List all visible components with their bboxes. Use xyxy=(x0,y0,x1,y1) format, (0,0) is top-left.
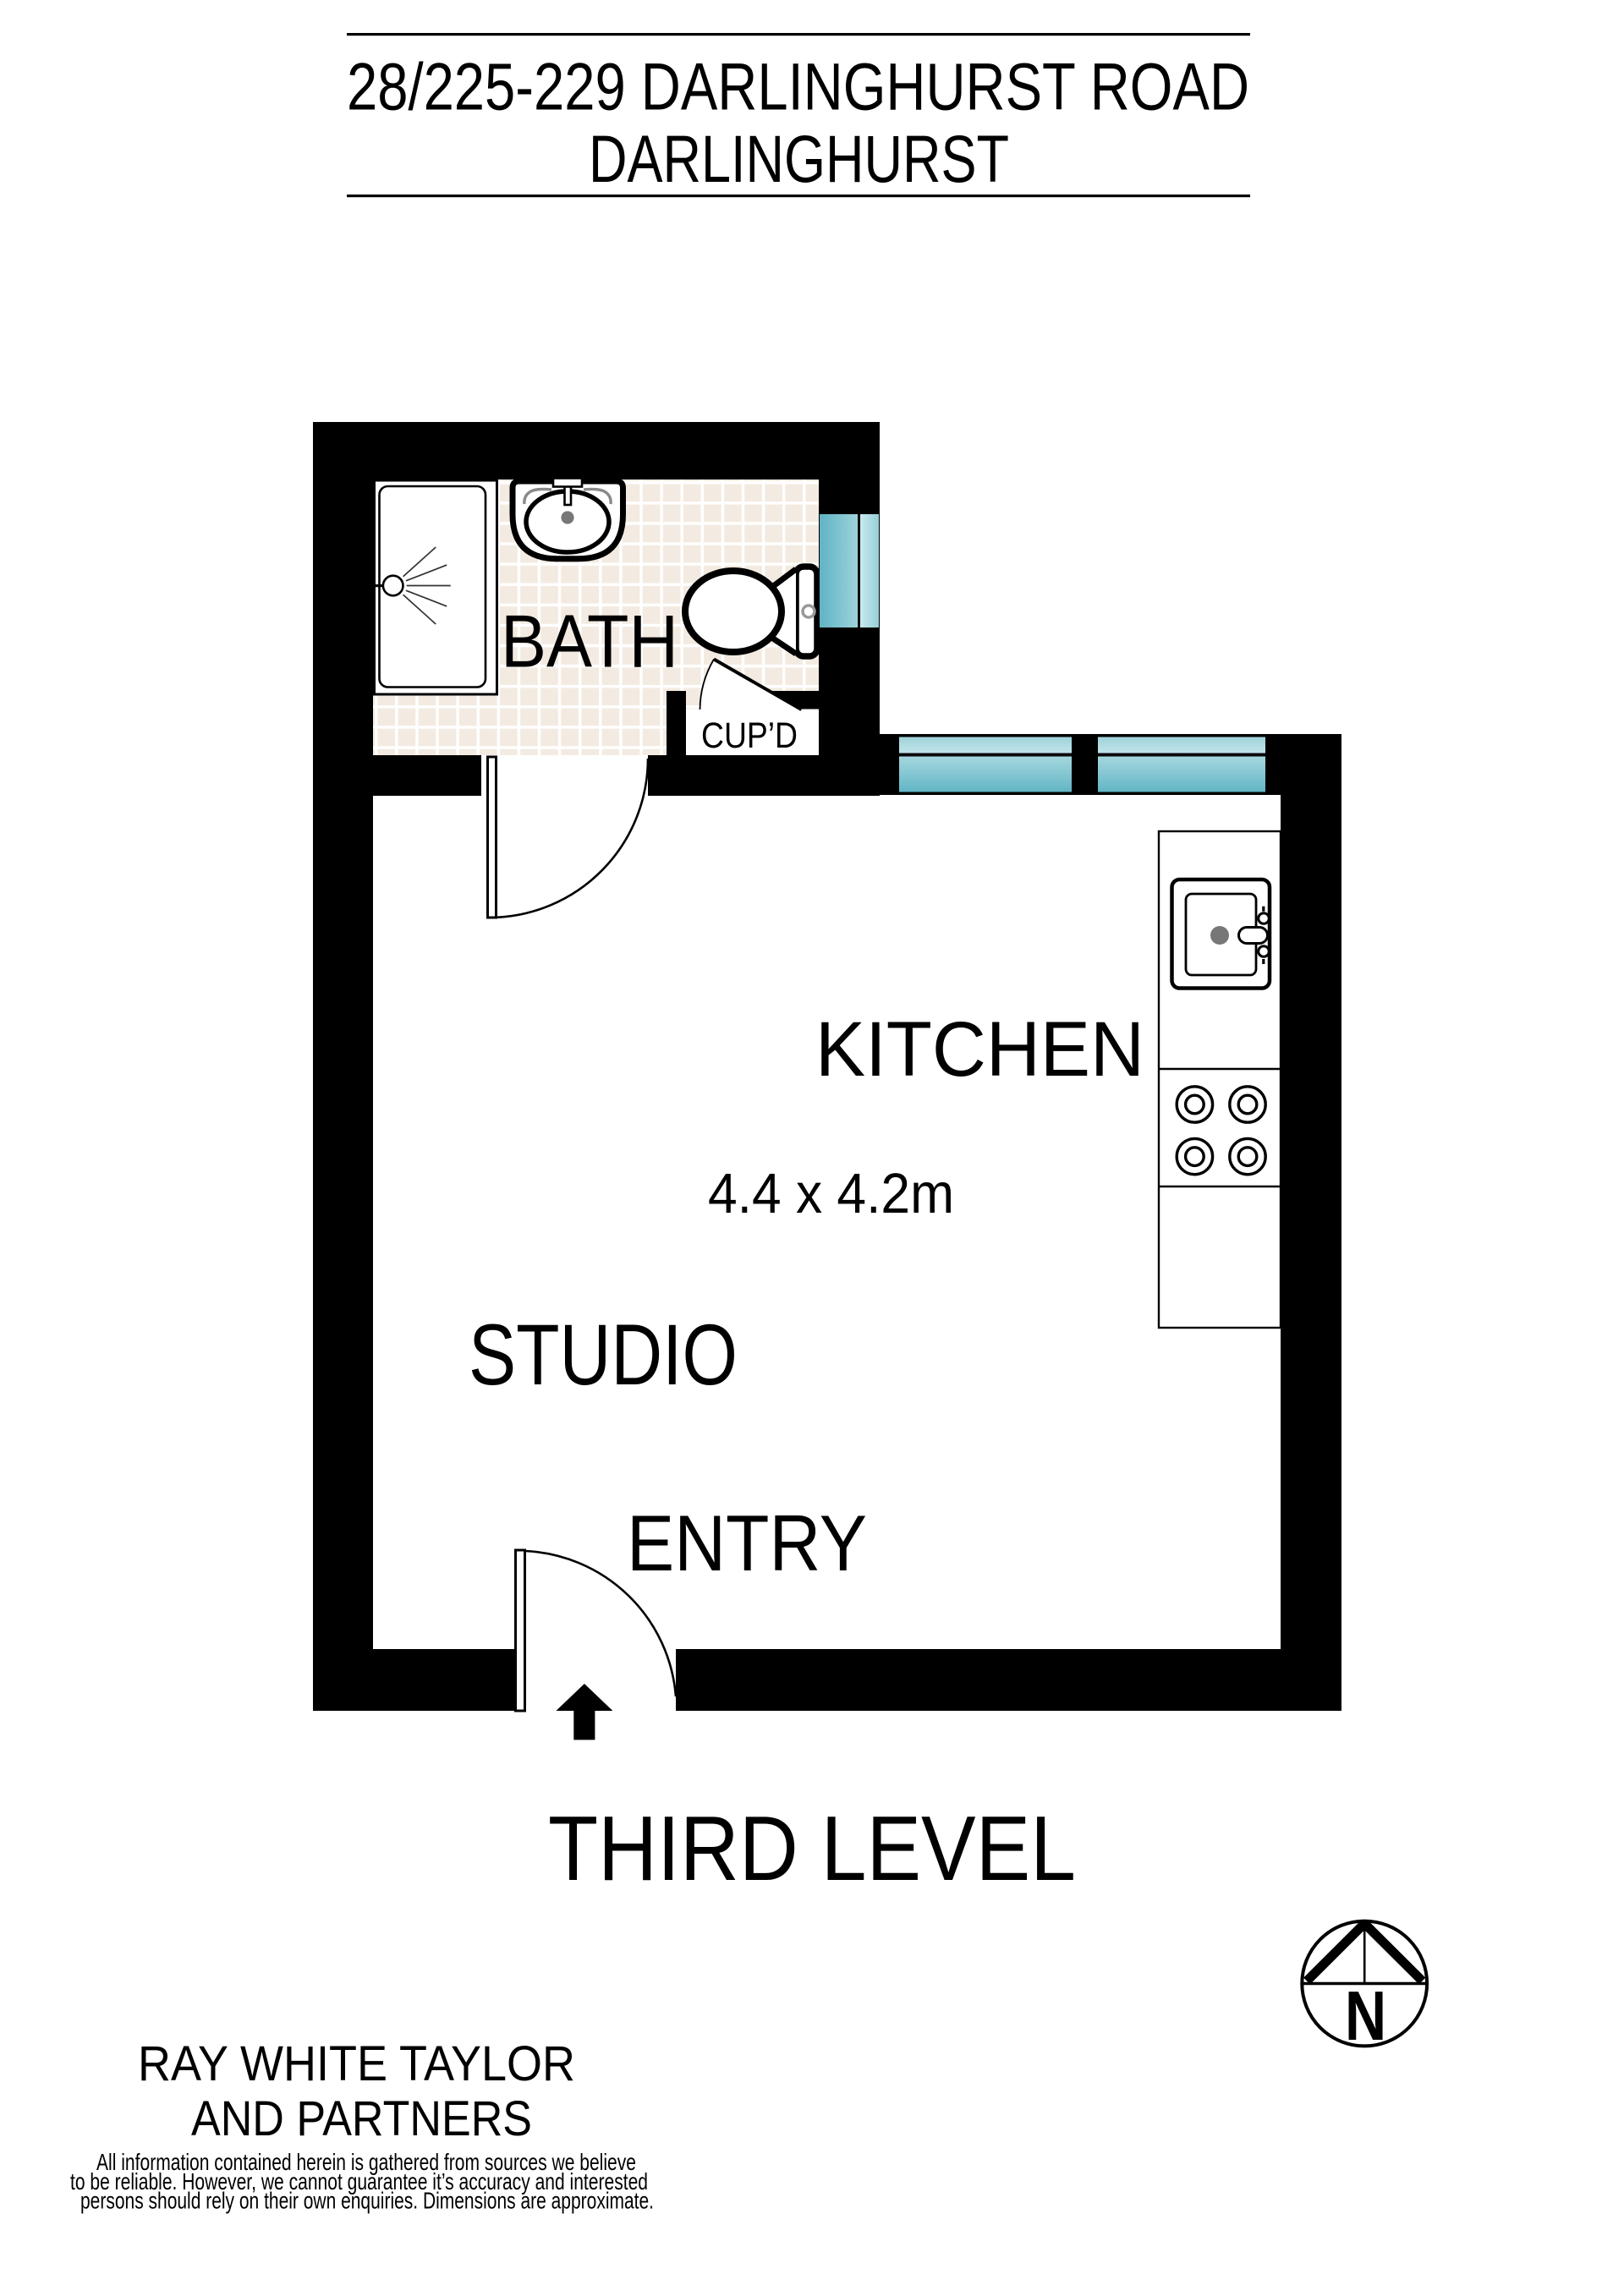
svg-text:28/225-229 DARLINGHURST ROAD: 28/225-229 DARLINGHURST ROAD xyxy=(347,49,1249,124)
svg-text:ENTRY: ENTRY xyxy=(627,1499,867,1587)
svg-text:persons should rely on their o: persons should rely on their own enquiri… xyxy=(80,2188,654,2214)
svg-text:AND PARTNERS: AND PARTNERS xyxy=(191,2091,532,2146)
svg-text:CUP’D: CUP’D xyxy=(701,715,798,756)
svg-text:THIRD LEVEL: THIRD LEVEL xyxy=(548,1797,1076,1900)
svg-text:N: N xyxy=(1345,1977,1386,2056)
svg-text:STUDIO: STUDIO xyxy=(469,1307,738,1403)
svg-text:4.4 x 4.2m: 4.4 x 4.2m xyxy=(708,1162,954,1225)
svg-text:RAY WHITE TAYLOR: RAY WHITE TAYLOR xyxy=(138,2036,575,2091)
svg-text:DARLINGHURST: DARLINGHURST xyxy=(589,121,1009,196)
svg-text:KITCHEN: KITCHEN xyxy=(815,1006,1144,1093)
svg-text:BATH: BATH xyxy=(501,600,678,683)
